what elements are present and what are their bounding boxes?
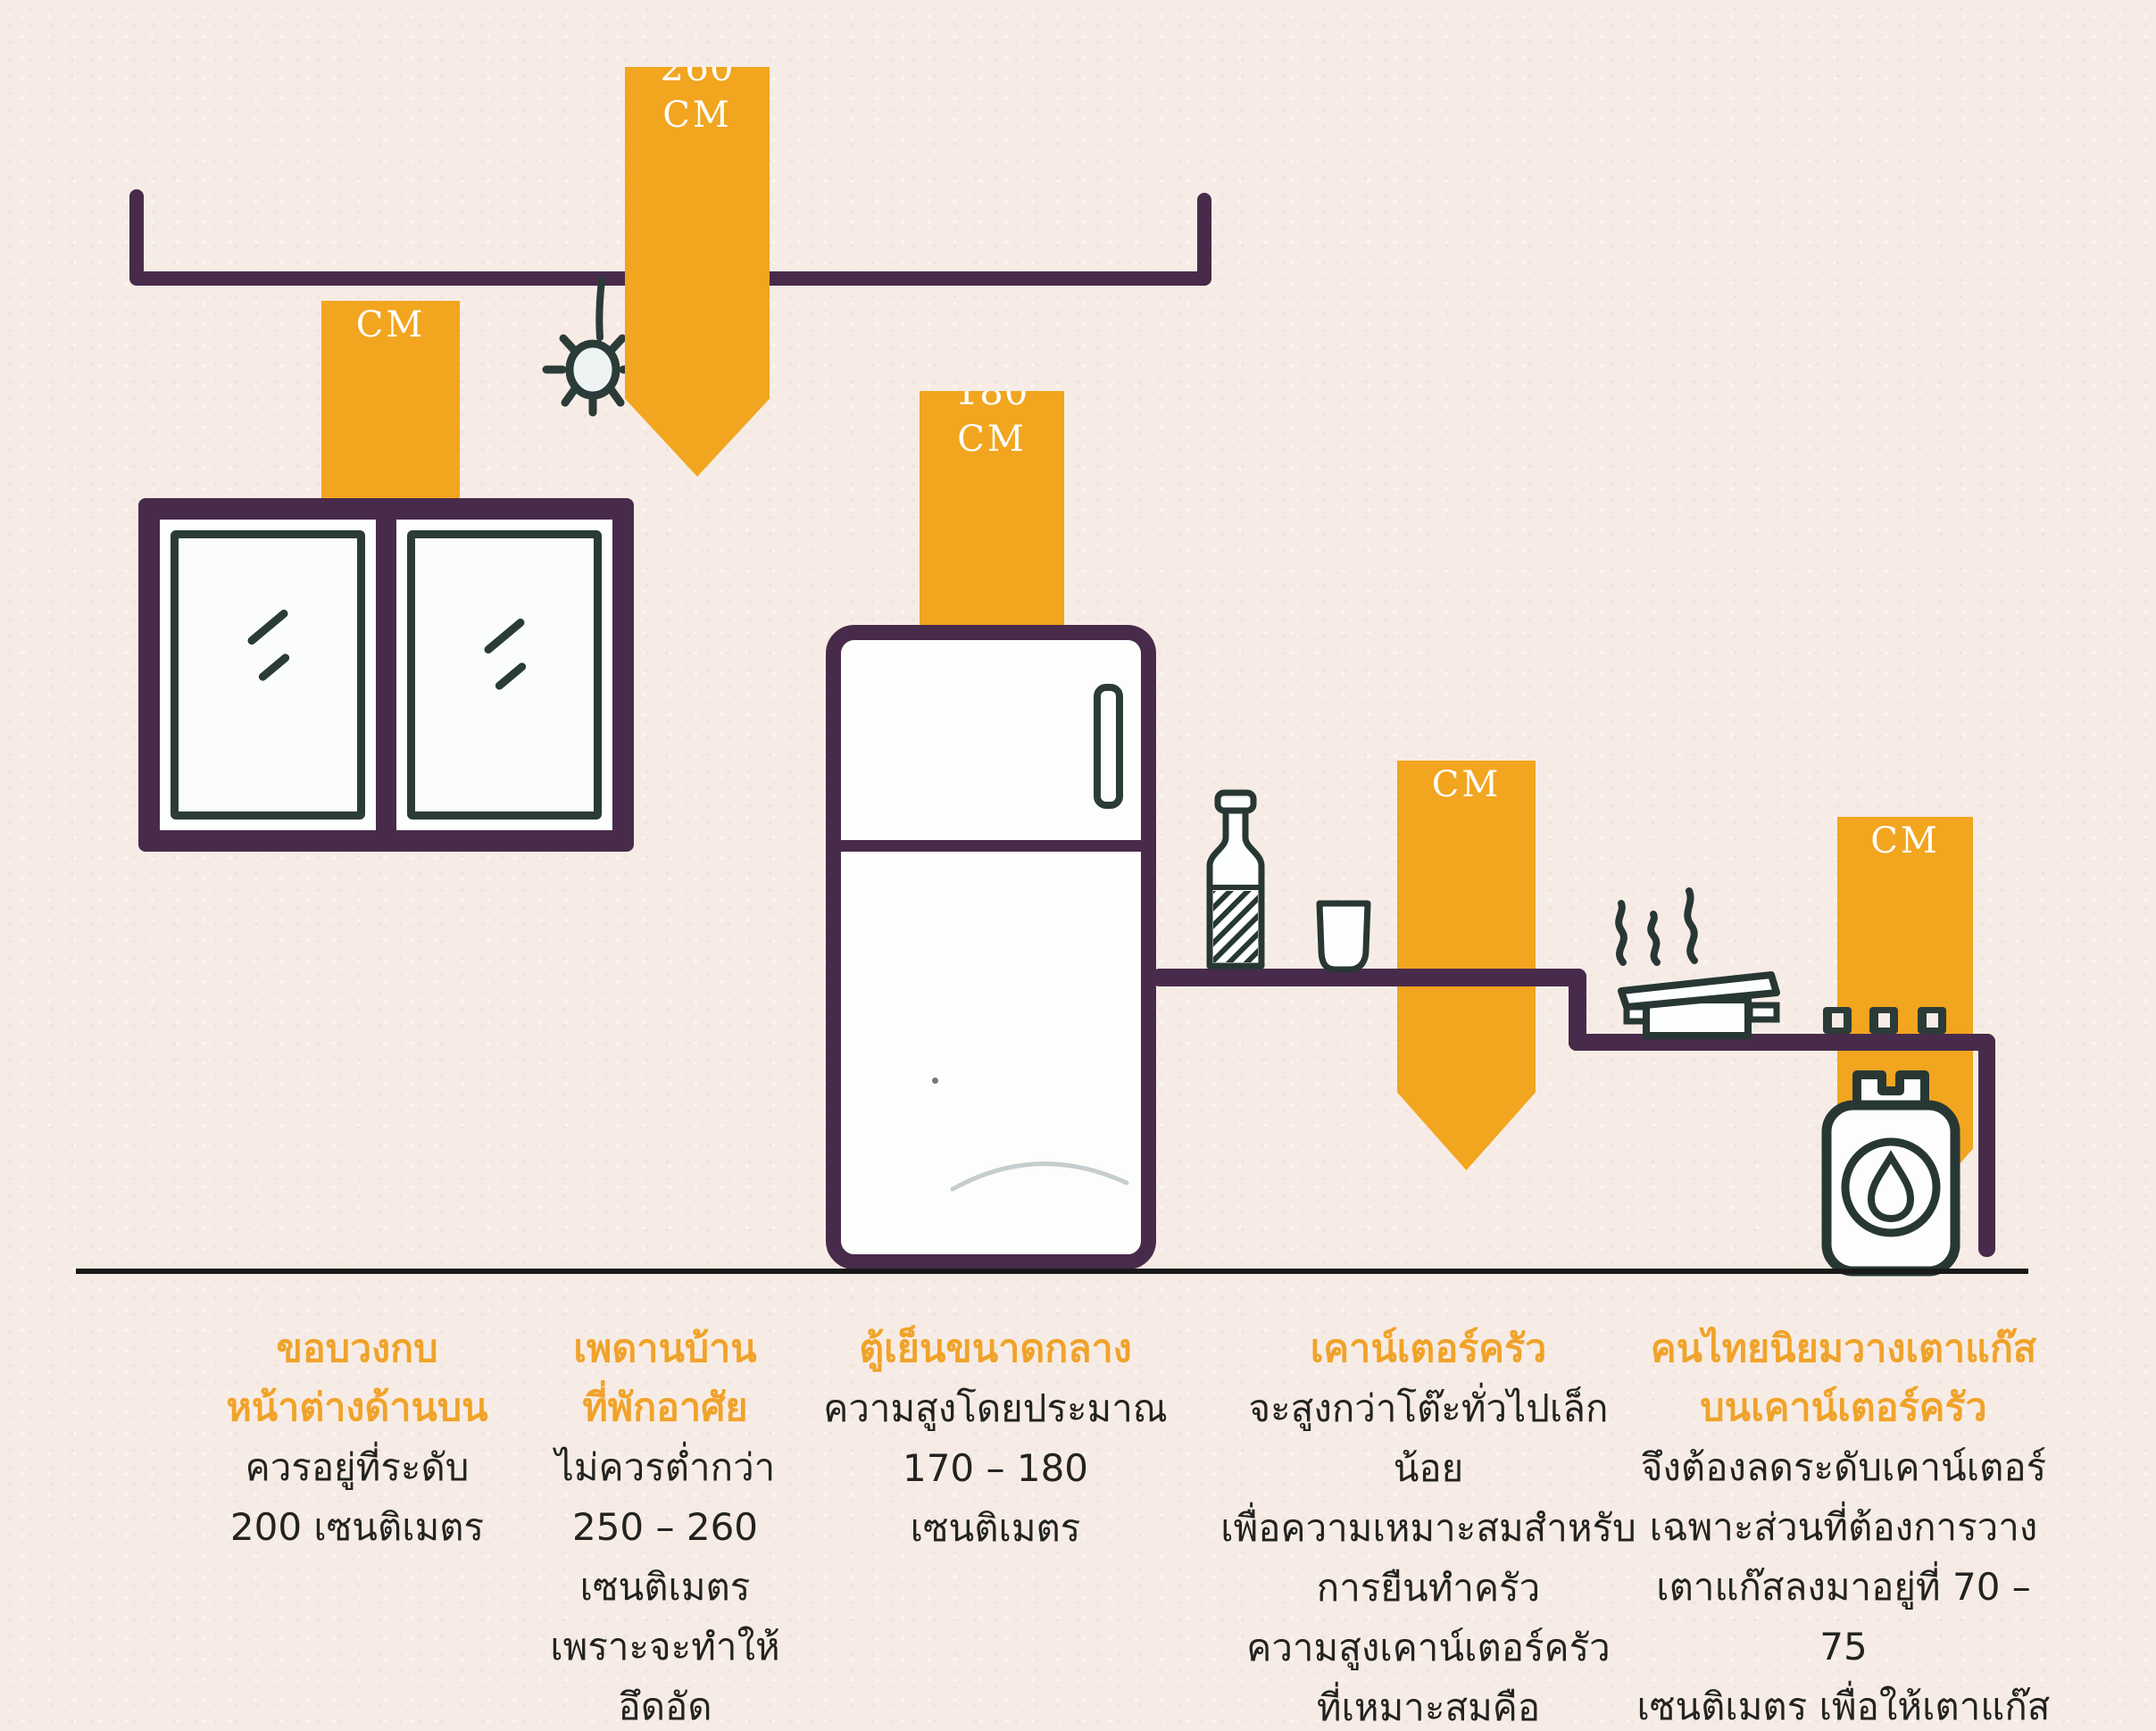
legend-title: เคาน์เตอร์ครัว bbox=[1219, 1319, 1638, 1378]
badge-unit: CM bbox=[957, 416, 1027, 462]
counter-right-leg bbox=[1978, 1034, 1995, 1257]
fridge-illustration bbox=[826, 625, 1156, 1269]
legend-column-ceiling: เพดานบ้าน ที่พักอาศัย ไม่ควรต่ำกว่า 250 … bbox=[504, 1319, 826, 1731]
legend-body: จึงต้องลดระดับเคาน์เตอร์ เฉพาะส่วนที่ต้อ… bbox=[1634, 1437, 2053, 1731]
glass-reflection bbox=[246, 608, 290, 646]
fridge-door-divider bbox=[836, 840, 1146, 852]
window-illustration bbox=[138, 498, 634, 852]
legend-body-line: ที่เหมาะสมคือ bbox=[1219, 1677, 1638, 1731]
badge-ceiling-height: 250-260 CM bbox=[625, 67, 770, 477]
fridge-handle bbox=[1094, 684, 1123, 809]
legend-title-line: หน้าต่างด้านบน bbox=[214, 1378, 500, 1437]
legend-title-line: ที่พักอาศัย bbox=[504, 1378, 826, 1437]
legend-title-line: เคาน์เตอร์ครัว bbox=[1219, 1319, 1638, 1378]
glass-reflection bbox=[257, 653, 291, 683]
legend-body-line: เตาแก๊สลงมาอยู่ที่ 70 – 75 bbox=[1634, 1557, 2053, 1677]
badge-counter-height: 80-85 CM bbox=[1397, 761, 1536, 1170]
badge-value: 80-85 bbox=[1410, 713, 1522, 761]
legend-title-line: บนเคาน์เตอร์ครัว bbox=[1634, 1378, 2053, 1437]
legend-body: จะสูงกว่าโต๊ะทั่วไปเล็กน้อย เพื่อความเหม… bbox=[1219, 1378, 1638, 1731]
glass-reflection bbox=[494, 662, 528, 692]
legend-column-counter: เคาน์เตอร์ครัว จะสูงกว่าโต๊ะทั่วไปเล็กน้… bbox=[1219, 1319, 1638, 1731]
legend-body-line: การยืนทำครัว bbox=[1219, 1558, 1638, 1618]
legend-title: คนไทยนิยมวางเตาแก๊ส บนเคาน์เตอร์ครัว bbox=[1634, 1319, 2053, 1437]
legend-body-line: จะสูงกว่าโต๊ะทั่วไปเล็กน้อย bbox=[1219, 1378, 1638, 1498]
window-glass bbox=[171, 530, 365, 820]
ceiling-left-tick bbox=[129, 189, 144, 284]
sketch-scratch bbox=[948, 1140, 1136, 1203]
legend-body-line: ควรอยู่ที่ระดับ bbox=[214, 1437, 500, 1497]
legend-title-line: เพดานบ้าน bbox=[504, 1319, 826, 1378]
legend-column-gas-stove: คนไทยนิยมวางเตาแก๊ส บนเคาน์เตอร์ครัว จึง… bbox=[1634, 1319, 2053, 1731]
legend-body-line: จึงต้องลดระดับเคาน์เตอร์ bbox=[1634, 1437, 2053, 1497]
badge-unit: CM bbox=[356, 302, 426, 348]
bottle-icon bbox=[1203, 791, 1269, 971]
legend-body-line: ความสูงโดยประมาณ bbox=[817, 1378, 1174, 1438]
legend-body-line: ไม่ควรต่ำกว่า bbox=[504, 1437, 826, 1497]
gas-cylinder-icon bbox=[1821, 1068, 1960, 1277]
badge-value: 250-260 bbox=[625, 0, 770, 92]
legend-body-line: เพื่อความเหมาะสมสำหรับ bbox=[1219, 1498, 1638, 1558]
ceiling-right-tick bbox=[1197, 193, 1211, 286]
legend-body: ควรอยู่ที่ระดับ 200 เซนติเมตร bbox=[214, 1437, 500, 1557]
legend-column-fridge: ตู้เย็นขนาดกลาง ความสูงโดยประมาณ 170 – 1… bbox=[817, 1319, 1174, 1558]
legend-title: ขอบวงกบ หน้าต่างด้านบน bbox=[214, 1319, 500, 1437]
ground-line bbox=[76, 1269, 2028, 1274]
legend-title-line: ขอบวงกบ bbox=[214, 1319, 500, 1378]
badge-value: 70-75 bbox=[1849, 770, 1961, 818]
legend-body-line: เฉพาะส่วนที่ต้องการวาง bbox=[1634, 1497, 2053, 1557]
legend-body-line: 250 – 260 เซนติเมตร bbox=[504, 1497, 826, 1617]
legend-body-line: 200 เซนติเมตร bbox=[214, 1497, 500, 1557]
legend-body-line: ความสูงเคาน์เตอร์ครัว bbox=[1219, 1618, 1638, 1677]
glass-reflection bbox=[483, 617, 527, 655]
cup-icon bbox=[1314, 900, 1373, 973]
window-pane-left bbox=[160, 520, 376, 830]
legend-body-line: เพราะจะทำให้อึดอัด bbox=[504, 1617, 826, 1731]
badge-value: 170-180 bbox=[920, 320, 1064, 416]
legend-title: เพดานบ้าน ที่พักอาศัย bbox=[504, 1319, 826, 1437]
badge-unit: CM bbox=[662, 92, 732, 138]
legend-body-line: 170 – 180 เซนติเมตร bbox=[817, 1438, 1174, 1558]
steam-icon bbox=[1607, 884, 1714, 964]
sketch-dot bbox=[932, 1078, 938, 1084]
legend-title-line: คนไทยนิยมวางเตาแก๊ส bbox=[1634, 1319, 2053, 1378]
kitchen-heights-infographic: 250-260 CM 200 CM 170-180 CM 80-85 CM 70… bbox=[0, 0, 2156, 1731]
legend-body: ไม่ควรต่ำกว่า 250 – 260 เซนติเมตร เพราะจ… bbox=[504, 1437, 826, 1731]
legend-body-line: เซนติเมตร เพื่อให้เตาแก๊ส bbox=[1634, 1677, 2053, 1731]
legend-title-line: ตู้เย็นขนาดกลาง bbox=[817, 1319, 1174, 1378]
stove-knobs-icon bbox=[1823, 1003, 1950, 1037]
pot-icon bbox=[1614, 966, 1786, 1039]
legend-body: ความสูงโดยประมาณ 170 – 180 เซนติเมตร bbox=[817, 1378, 1174, 1558]
legend-title: ตู้เย็นขนาดกลาง bbox=[817, 1319, 1174, 1378]
badge-unit: CM bbox=[1870, 818, 1940, 864]
window-glass bbox=[407, 530, 602, 820]
window-pane-right bbox=[396, 520, 612, 830]
legend-column-window: ขอบวงกบ หน้าต่างด้านบน ควรอยู่ที่ระดับ 2… bbox=[214, 1319, 500, 1557]
badge-unit: CM bbox=[1432, 761, 1502, 808]
